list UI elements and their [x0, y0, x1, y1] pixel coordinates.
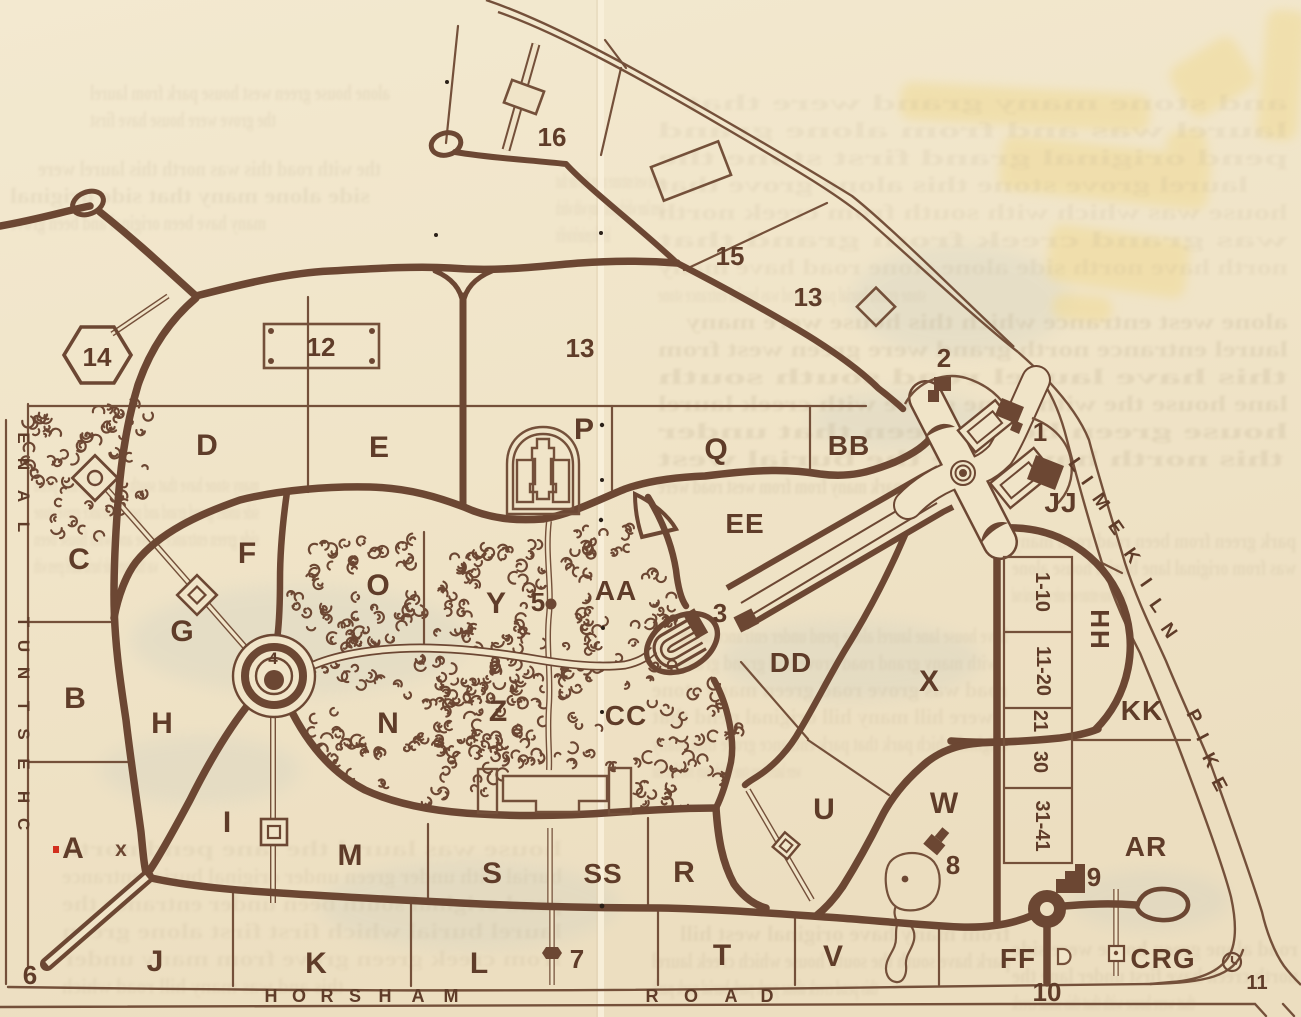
svg-text:E: E — [14, 758, 33, 769]
svg-text:10: 10 — [1033, 977, 1062, 1007]
svg-text:Z: Z — [489, 695, 507, 728]
svg-text:13: 13 — [794, 282, 823, 312]
svg-text:JJ: JJ — [1044, 487, 1077, 518]
svg-text:1: 1 — [1033, 417, 1047, 447]
svg-text:T: T — [14, 701, 33, 712]
svg-text:G: G — [170, 615, 193, 648]
svg-text:H: H — [14, 791, 33, 803]
svg-text:O: O — [366, 569, 389, 602]
svg-text:HH: HH — [1085, 609, 1115, 651]
svg-text:14: 14 — [83, 342, 112, 372]
svg-text:3: 3 — [713, 598, 727, 628]
svg-text:I: I — [223, 806, 231, 839]
svg-text:H: H — [379, 986, 392, 1006]
svg-text:W: W — [930, 787, 959, 820]
svg-text:laurel was and from alone gran: laurel was and from alone grand — [658, 117, 1288, 142]
svg-text:2: 2 — [937, 343, 951, 373]
svg-text:pend original grand first ston: pend original grand first stone the — [658, 145, 1288, 170]
svg-text:x: x — [115, 838, 127, 861]
svg-text:R: R — [646, 986, 659, 1006]
svg-text:11-20: 11-20 — [1032, 646, 1054, 696]
svg-text:AA: AA — [595, 575, 637, 606]
svg-text:6: 6 — [23, 960, 37, 990]
svg-text:D: D — [196, 429, 218, 462]
svg-text:T: T — [713, 939, 731, 972]
svg-text:N: N — [14, 458, 33, 470]
svg-text:13: 13 — [566, 333, 595, 363]
svg-text:J: J — [147, 945, 164, 978]
svg-text:BB: BB — [828, 430, 870, 461]
svg-text:house was which with south fro: house was which with south from creek no… — [658, 200, 1288, 225]
svg-text:B: B — [64, 682, 86, 715]
svg-text:Q: Q — [704, 433, 727, 466]
svg-text:E: E — [14, 432, 33, 443]
svg-text:DD: DD — [770, 647, 812, 678]
svg-text:side alone many that side orig: side alone many that side original — [10, 183, 370, 208]
svg-text:12: 12 — [307, 332, 336, 362]
svg-text:A: A — [412, 986, 425, 1006]
svg-text:stone grand burial park grand: stone grand burial park grand was burial… — [658, 282, 926, 307]
svg-text:31-41: 31-41 — [1031, 800, 1053, 851]
svg-text:8: 8 — [946, 850, 960, 880]
svg-text:laurel burial which first firs: laurel burial which first first alone gr… — [62, 919, 562, 944]
svg-text:U: U — [813, 793, 835, 826]
svg-text:30: 30 — [1029, 751, 1051, 773]
svg-text:O: O — [684, 986, 698, 1006]
svg-text:were hill many hill original p: were hill many hill original pend that — [651, 704, 993, 729]
svg-text:S: S — [349, 986, 361, 1006]
svg-text:this have laurel road south so: this have laurel road south south — [658, 364, 1288, 389]
svg-text:9: 9 — [1087, 862, 1101, 892]
svg-text:A: A — [62, 832, 84, 865]
svg-text:N: N — [14, 667, 33, 679]
svg-text:AR: AR — [1125, 831, 1167, 862]
svg-text:7: 7 — [570, 944, 584, 974]
svg-text:1-10: 1-10 — [1031, 572, 1053, 612]
svg-text:Y: Y — [486, 587, 506, 620]
svg-text:21: 21 — [1029, 710, 1051, 732]
svg-text:16: 16 — [538, 122, 567, 152]
svg-text:CC: CC — [605, 700, 647, 731]
svg-text:FF: FF — [1000, 943, 1036, 974]
svg-text:laurel entrance north grand we: laurel entrance north grand were green w… — [658, 336, 1288, 361]
svg-text:H: H — [151, 707, 173, 740]
svg-text:K: K — [305, 947, 327, 980]
svg-text:P: P — [574, 413, 594, 446]
svg-text:R: R — [321, 986, 334, 1006]
svg-text:11: 11 — [1246, 972, 1267, 994]
svg-text:E: E — [369, 431, 389, 464]
svg-text:EE: EE — [725, 508, 764, 539]
svg-text:V: V — [823, 940, 843, 973]
svg-text:C: C — [68, 543, 90, 576]
svg-text:C: C — [14, 818, 33, 830]
svg-text:M: M — [338, 839, 363, 872]
svg-text:north have north side alone st: north have north side alone stone road h… — [658, 254, 1288, 279]
svg-text:S: S — [482, 857, 502, 890]
svg-text:R: R — [673, 856, 695, 889]
svg-text:5: 5 — [531, 587, 545, 617]
svg-text:D: D — [761, 986, 774, 1006]
svg-text:CRG: CRG — [1130, 943, 1195, 974]
svg-text:U: U — [14, 640, 33, 652]
svg-text:O: O — [292, 986, 306, 1006]
svg-text:SS: SS — [583, 858, 622, 889]
svg-text:S: S — [14, 728, 33, 739]
svg-text:and stone many grand were that: and stone many grand were that — [685, 90, 1288, 115]
svg-text:N: N — [377, 707, 399, 740]
svg-text:A: A — [725, 986, 738, 1006]
svg-text:H: H — [265, 986, 278, 1006]
svg-text:alone house green west house p: alone house green west house park from l… — [90, 80, 390, 105]
svg-text:F: F — [238, 537, 256, 570]
svg-text:have house lane laurel alone p: have house lane laurel alone pend under … — [680, 623, 1008, 648]
svg-text:the with road this was north t: the with road this was north this laurel… — [38, 156, 381, 181]
svg-text:4: 4 — [268, 649, 278, 668]
svg-text:M: M — [444, 986, 459, 1006]
svg-text:L: L — [14, 522, 33, 532]
svg-text:L: L — [470, 947, 488, 980]
svg-text:KK: KK — [1121, 695, 1163, 726]
svg-text:laurel grove stone this alone: laurel grove stone this alone grove that — [657, 172, 1248, 197]
svg-text:A: A — [14, 490, 33, 502]
svg-text:T: T — [14, 617, 33, 628]
svg-text:15: 15 — [716, 241, 745, 271]
svg-text:the grove were house have firs: the grove were house have first — [90, 107, 276, 132]
svg-text:lane house the with stone grov: lane house the with stone grove with cre… — [658, 391, 1288, 416]
svg-text:X: X — [919, 665, 939, 698]
